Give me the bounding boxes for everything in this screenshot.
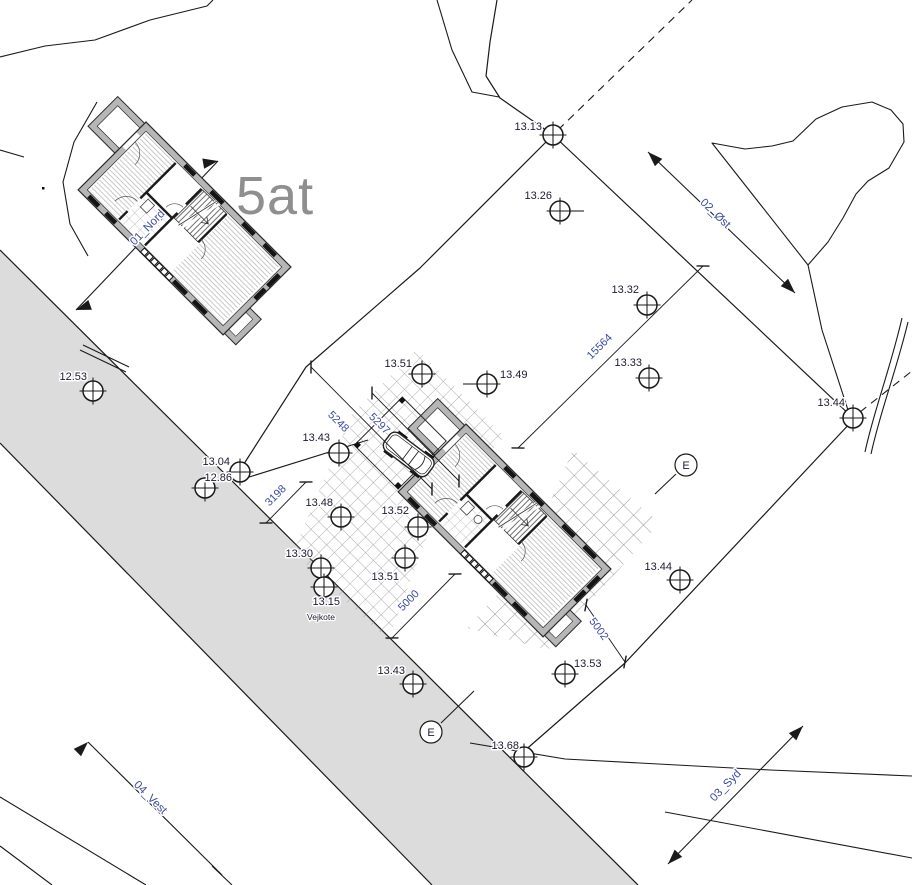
survey-point [42, 187, 45, 190]
elevation-label: 13.68 [491, 740, 519, 752]
elevation-label: 13.44 [817, 397, 845, 409]
elevation-label: 12.53 [59, 371, 87, 383]
elevation-label: 13.44 [644, 561, 672, 573]
plot-number-label: 5at [236, 166, 314, 226]
elevation-label: 13.15 [312, 596, 340, 608]
vejkote-label: Vejkote [307, 612, 335, 622]
elevation-label: 13.51 [384, 358, 412, 370]
elevation-label: 13.30 [285, 548, 313, 560]
elevation-label: 12.86 [204, 472, 232, 484]
elevation-label: 13.04 [202, 456, 230, 468]
elevation-label: 13.33 [614, 357, 642, 369]
e-reference-label: E [427, 727, 434, 739]
e-reference-label: E [682, 460, 689, 472]
elevation-label: 13.52 [381, 505, 409, 517]
elevation-label: 13.43 [302, 432, 330, 444]
elevation-label: 13.51 [371, 571, 399, 583]
elevation-label: 13.48 [305, 497, 333, 509]
elevation-label: 13.49 [500, 369, 528, 381]
elevation-label: 13.32 [611, 284, 639, 296]
elevation-label: 13.53 [574, 658, 602, 670]
elevation-label: 13.26 [524, 190, 552, 202]
site-plan-canvas: 1556452485297319850005002 EE 5at Vejkote… [0, 0, 912, 885]
elevation-label: 13.43 [377, 665, 405, 677]
elevation-label: 13.13 [514, 121, 542, 133]
site-plan-page: 1556452485297319850005002 EE 5at Vejkote… [0, 0, 912, 885]
